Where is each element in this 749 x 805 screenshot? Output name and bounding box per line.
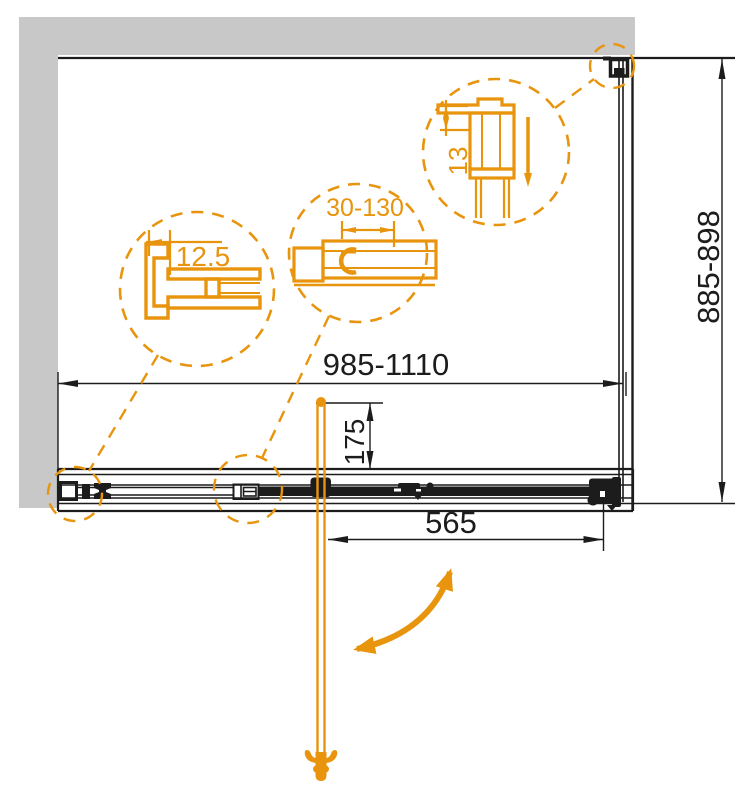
- adjustment-profile-small: [294, 248, 323, 281]
- dim-arrow-up: [719, 59, 726, 79]
- leader-line-3: [555, 79, 594, 108]
- swing-arrow-icon: [357, 572, 450, 649]
- dim-arrow-left: [328, 536, 348, 543]
- handle-mount-block: [311, 478, 332, 498]
- top-profile-bar: [438, 99, 514, 113]
- detail-label-wall-profile: 12.5: [176, 241, 231, 272]
- dimension-handle-offset: 175: [316, 403, 383, 469]
- door-swing-arrow: [357, 572, 450, 649]
- detail-label-adjustment: 30-130: [326, 194, 404, 222]
- dim-label-side-depth: 885-898: [691, 210, 726, 324]
- dim-label-overall-width: 985-1110: [323, 347, 449, 382]
- detail-label-top-profile: 13: [443, 147, 473, 176]
- dimension-side-depth: 885-898: [691, 59, 726, 502]
- side-glass-panel: [619, 58, 623, 502]
- wall-top: [19, 17, 635, 55]
- wall-bracket-top-right: [603, 57, 628, 77]
- dim-arrow-right: [603, 380, 623, 387]
- dim-label-door-width: 565: [425, 505, 477, 540]
- leader-line-1: [89, 355, 158, 471]
- leader-line-2: [262, 316, 329, 458]
- handle-foot-icon: [305, 750, 338, 781]
- detail-circle-top-profile: 13: [423, 79, 569, 225]
- dim-arrow-left: [58, 380, 78, 387]
- detail-circle-wall-profile: 12.5: [120, 212, 274, 366]
- dim-label-handle-offset: 175: [339, 419, 370, 466]
- dim-arrow-down: [719, 482, 726, 502]
- dim-arrow-right: [584, 536, 604, 543]
- door-handle-bar: [305, 397, 338, 781]
- wall-left: [19, 17, 58, 508]
- shower-enclosure-drawing: 985-1110 885-898 565 175: [0, 0, 749, 800]
- handle-bar-cap: [316, 397, 326, 407]
- detail-circle-adjustment: 30-130: [289, 184, 436, 322]
- dimension-door-width: 565: [328, 498, 604, 551]
- zoom-circle-icon: [120, 212, 274, 366]
- dim-arrow-up: [367, 403, 374, 421]
- door-stopper: [234, 485, 259, 500]
